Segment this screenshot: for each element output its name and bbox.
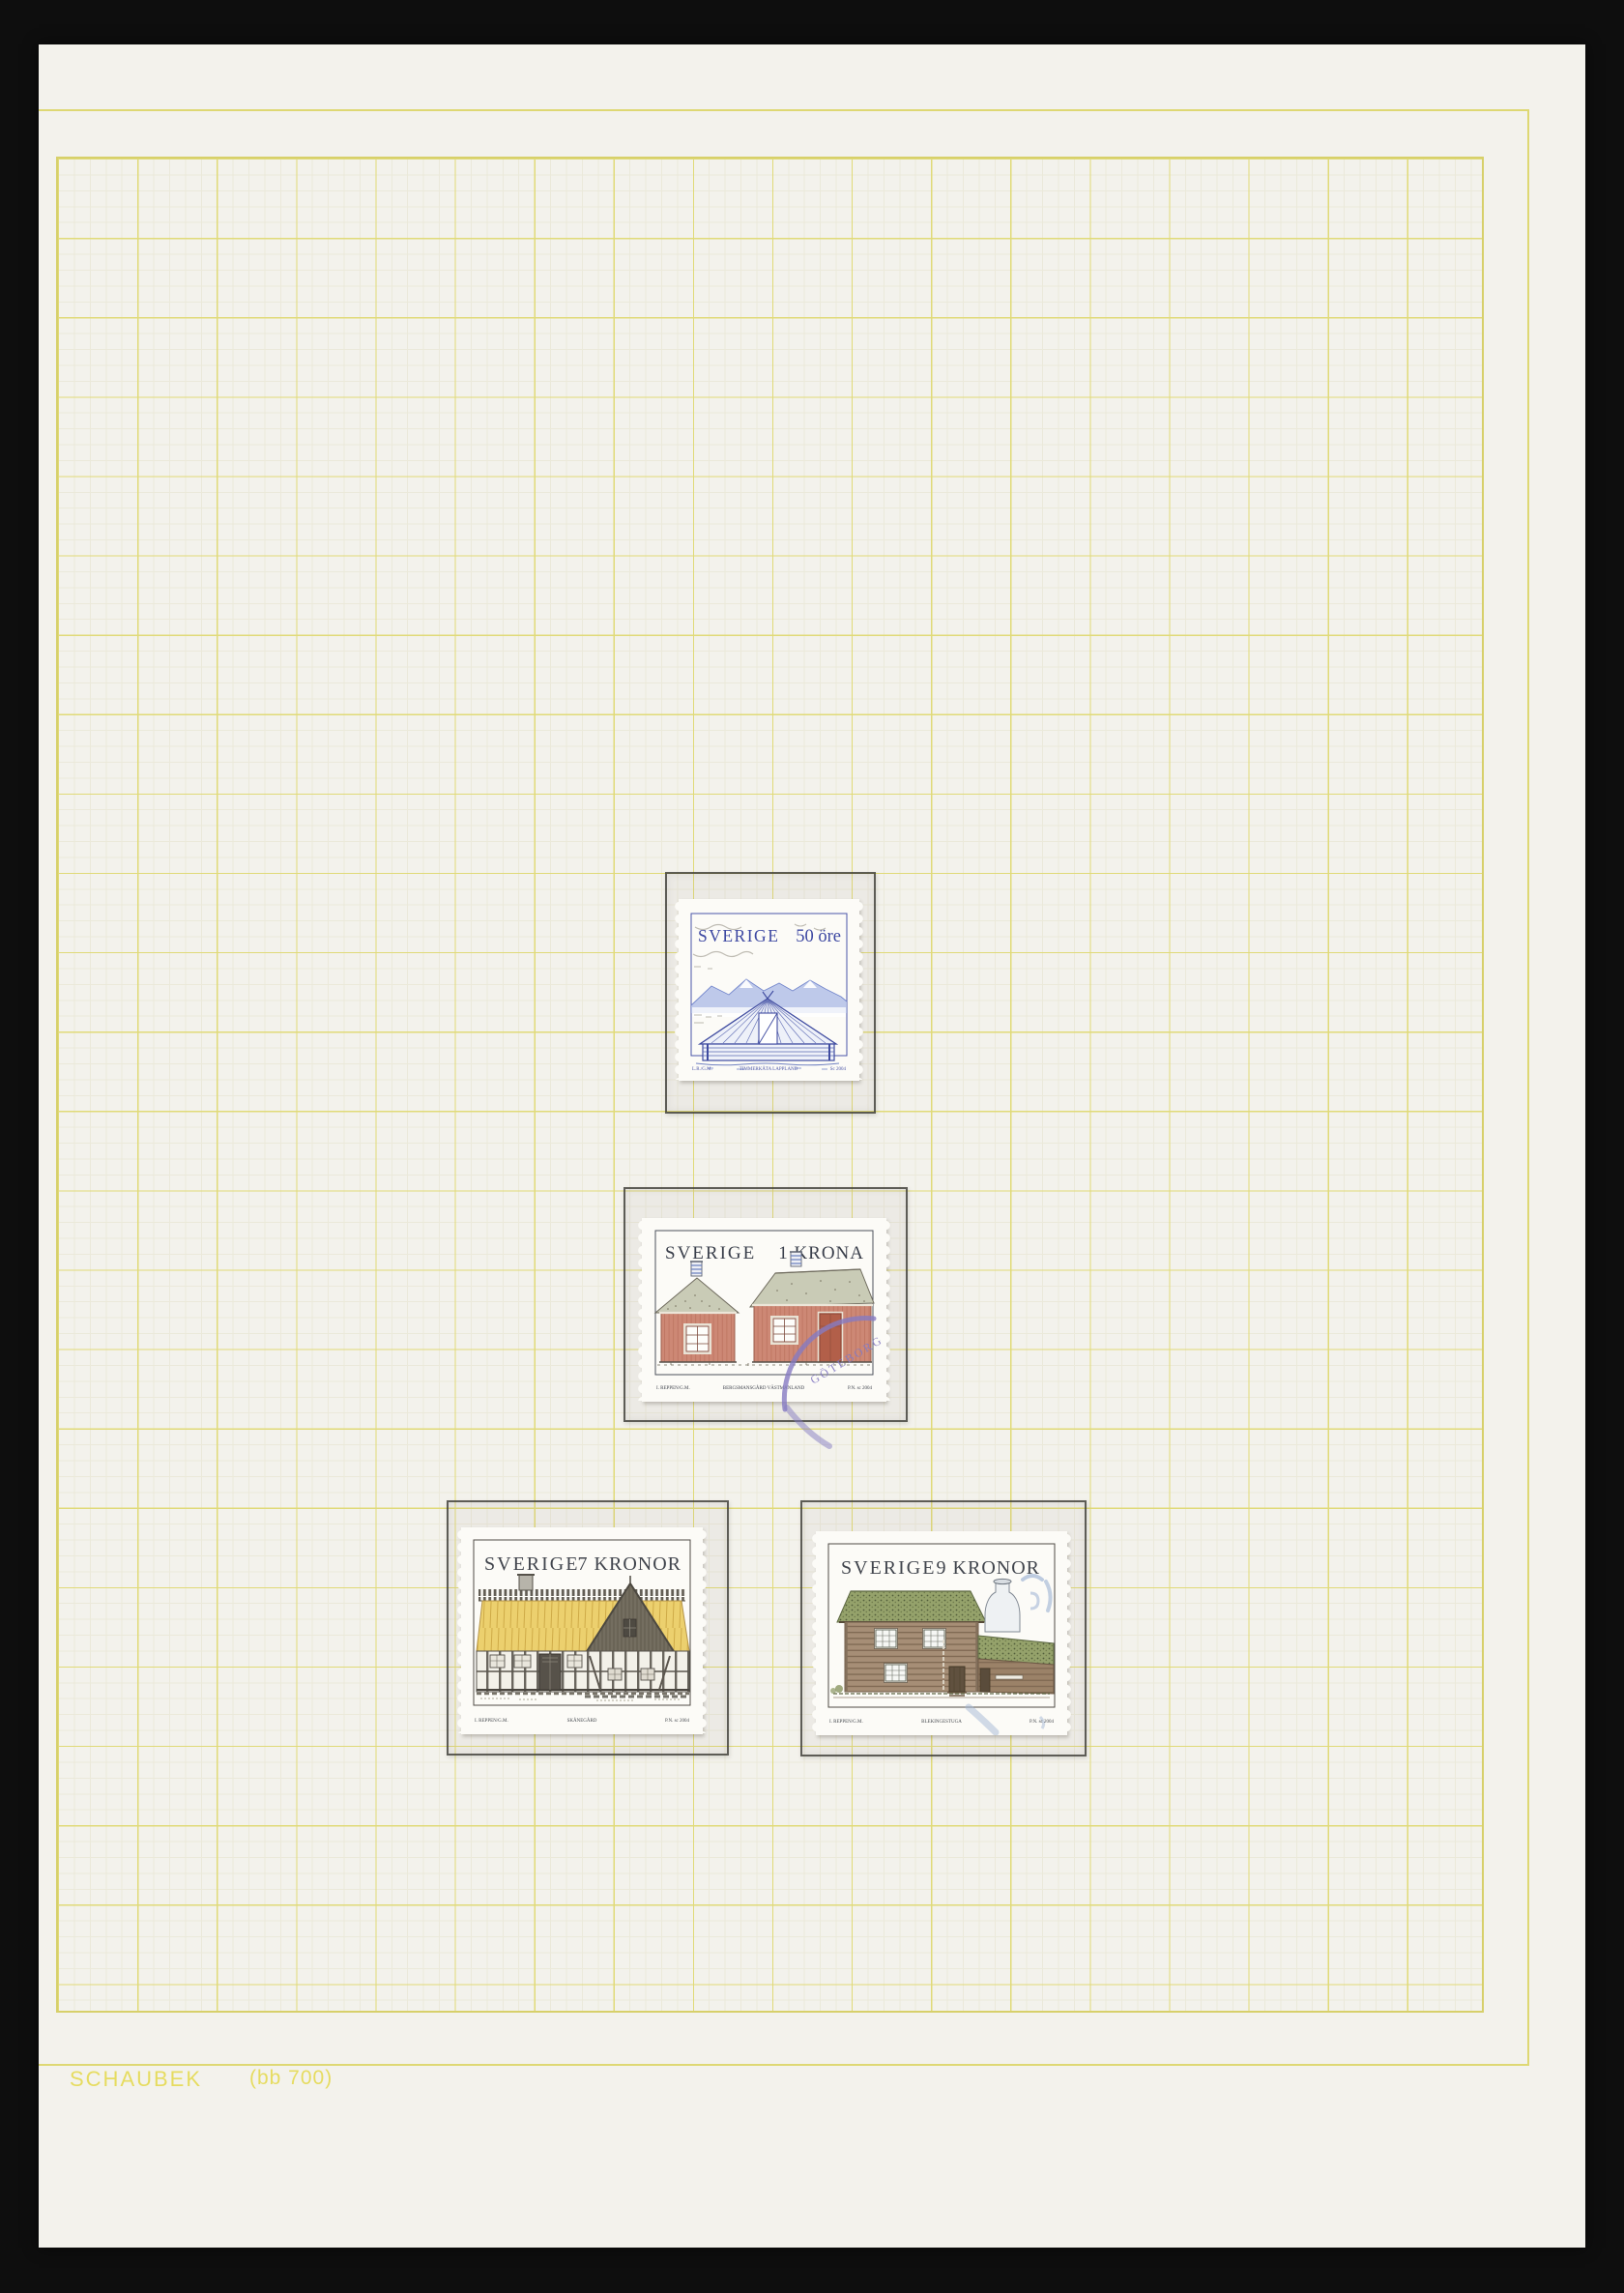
year-credit: P.N. sc 2004 [665,1719,690,1724]
marginal-inscriptions: I. REPPEN/G.M. SKÅNEGÅRD P.N. sc 2004 [475,1718,689,1724]
marginal-inscriptions: I. REPPEN/G.M. BERGSMANSGÅRD VÄSTMANLAND… [656,1385,872,1391]
stamp-1-krona: SVERIGE 1 KRONA [642,1218,886,1402]
year-credit: P.N. sc 2004 [1029,1720,1055,1725]
year-credit: P.N. sc 2004 [848,1386,873,1391]
perforation-edge [456,1528,462,1733]
brand-label: SCHAUBEK [70,2067,202,2092]
stamp-mount: SVERIGE 7 KRONOR [447,1500,729,1756]
bottle-chimney-and-outbuilding [978,1579,1054,1694]
scanned-album-sheet: SCHAUBEK (bb 700) SVERIGE 50 öre [0,0,1624,2293]
stamp-country: SVERIGE [665,1243,756,1263]
perforation-edge [858,900,864,1080]
stamp-mount: SVERIGE 9 KRONOR [800,1500,1087,1756]
log-cabin [837,1591,986,1696]
engraver-credit: I. REPPEN/G.M. [656,1386,690,1391]
perforation-edge [885,1219,891,1401]
engraver-credit: L.R./G.M. [692,1067,712,1072]
perforation-edge [811,1532,817,1734]
year-credit: Sc 2004 [830,1067,847,1072]
stamp-mount: SVERIGE 50 öre [665,872,876,1114]
stamp-7-kronor: SVERIGE 7 KRONOR [461,1527,703,1734]
marginal-inscriptions: I. REPPEN/G.M. BLEKINGESTUGA P.N. sc 200… [829,1720,1054,1725]
left-cottage [655,1262,739,1362]
stamp-value: 7 KRONOR [578,1553,681,1575]
engraver-credit: I. REPPEN/G.M. [829,1720,863,1725]
stamp-mount: SVERIGE 1 KRONA [623,1187,908,1422]
stamp-50-ore: SVERIGE 50 öre [679,899,859,1081]
stamp-caption: BLEKINGESTUGA [921,1720,962,1725]
stamp-caption: TIMMERKÅTA LAPPLAND [739,1066,798,1072]
engraver-credit: I. REPPEN/G.M. [475,1719,508,1724]
perforation-edge [1066,1532,1072,1734]
thatched-farmhouse [477,1575,689,1700]
page-code: (bb 700) [249,2067,333,2090]
stamp-country: SVERIGE [484,1553,579,1575]
stamp-caption: SKÅNEGÅRD [567,1718,597,1724]
stamp-caption: BERGSMANSGÅRD VÄSTMANLAND [723,1385,805,1391]
stamp-9-kronor: SVERIGE 9 KRONOR [816,1531,1067,1735]
stamp-country: SVERIGE [841,1557,936,1579]
stamp-value: 9 KRONOR [937,1557,1040,1579]
perforation-edge [702,1528,708,1733]
perforation-edge [637,1219,643,1401]
perforation-edge [674,900,680,1080]
